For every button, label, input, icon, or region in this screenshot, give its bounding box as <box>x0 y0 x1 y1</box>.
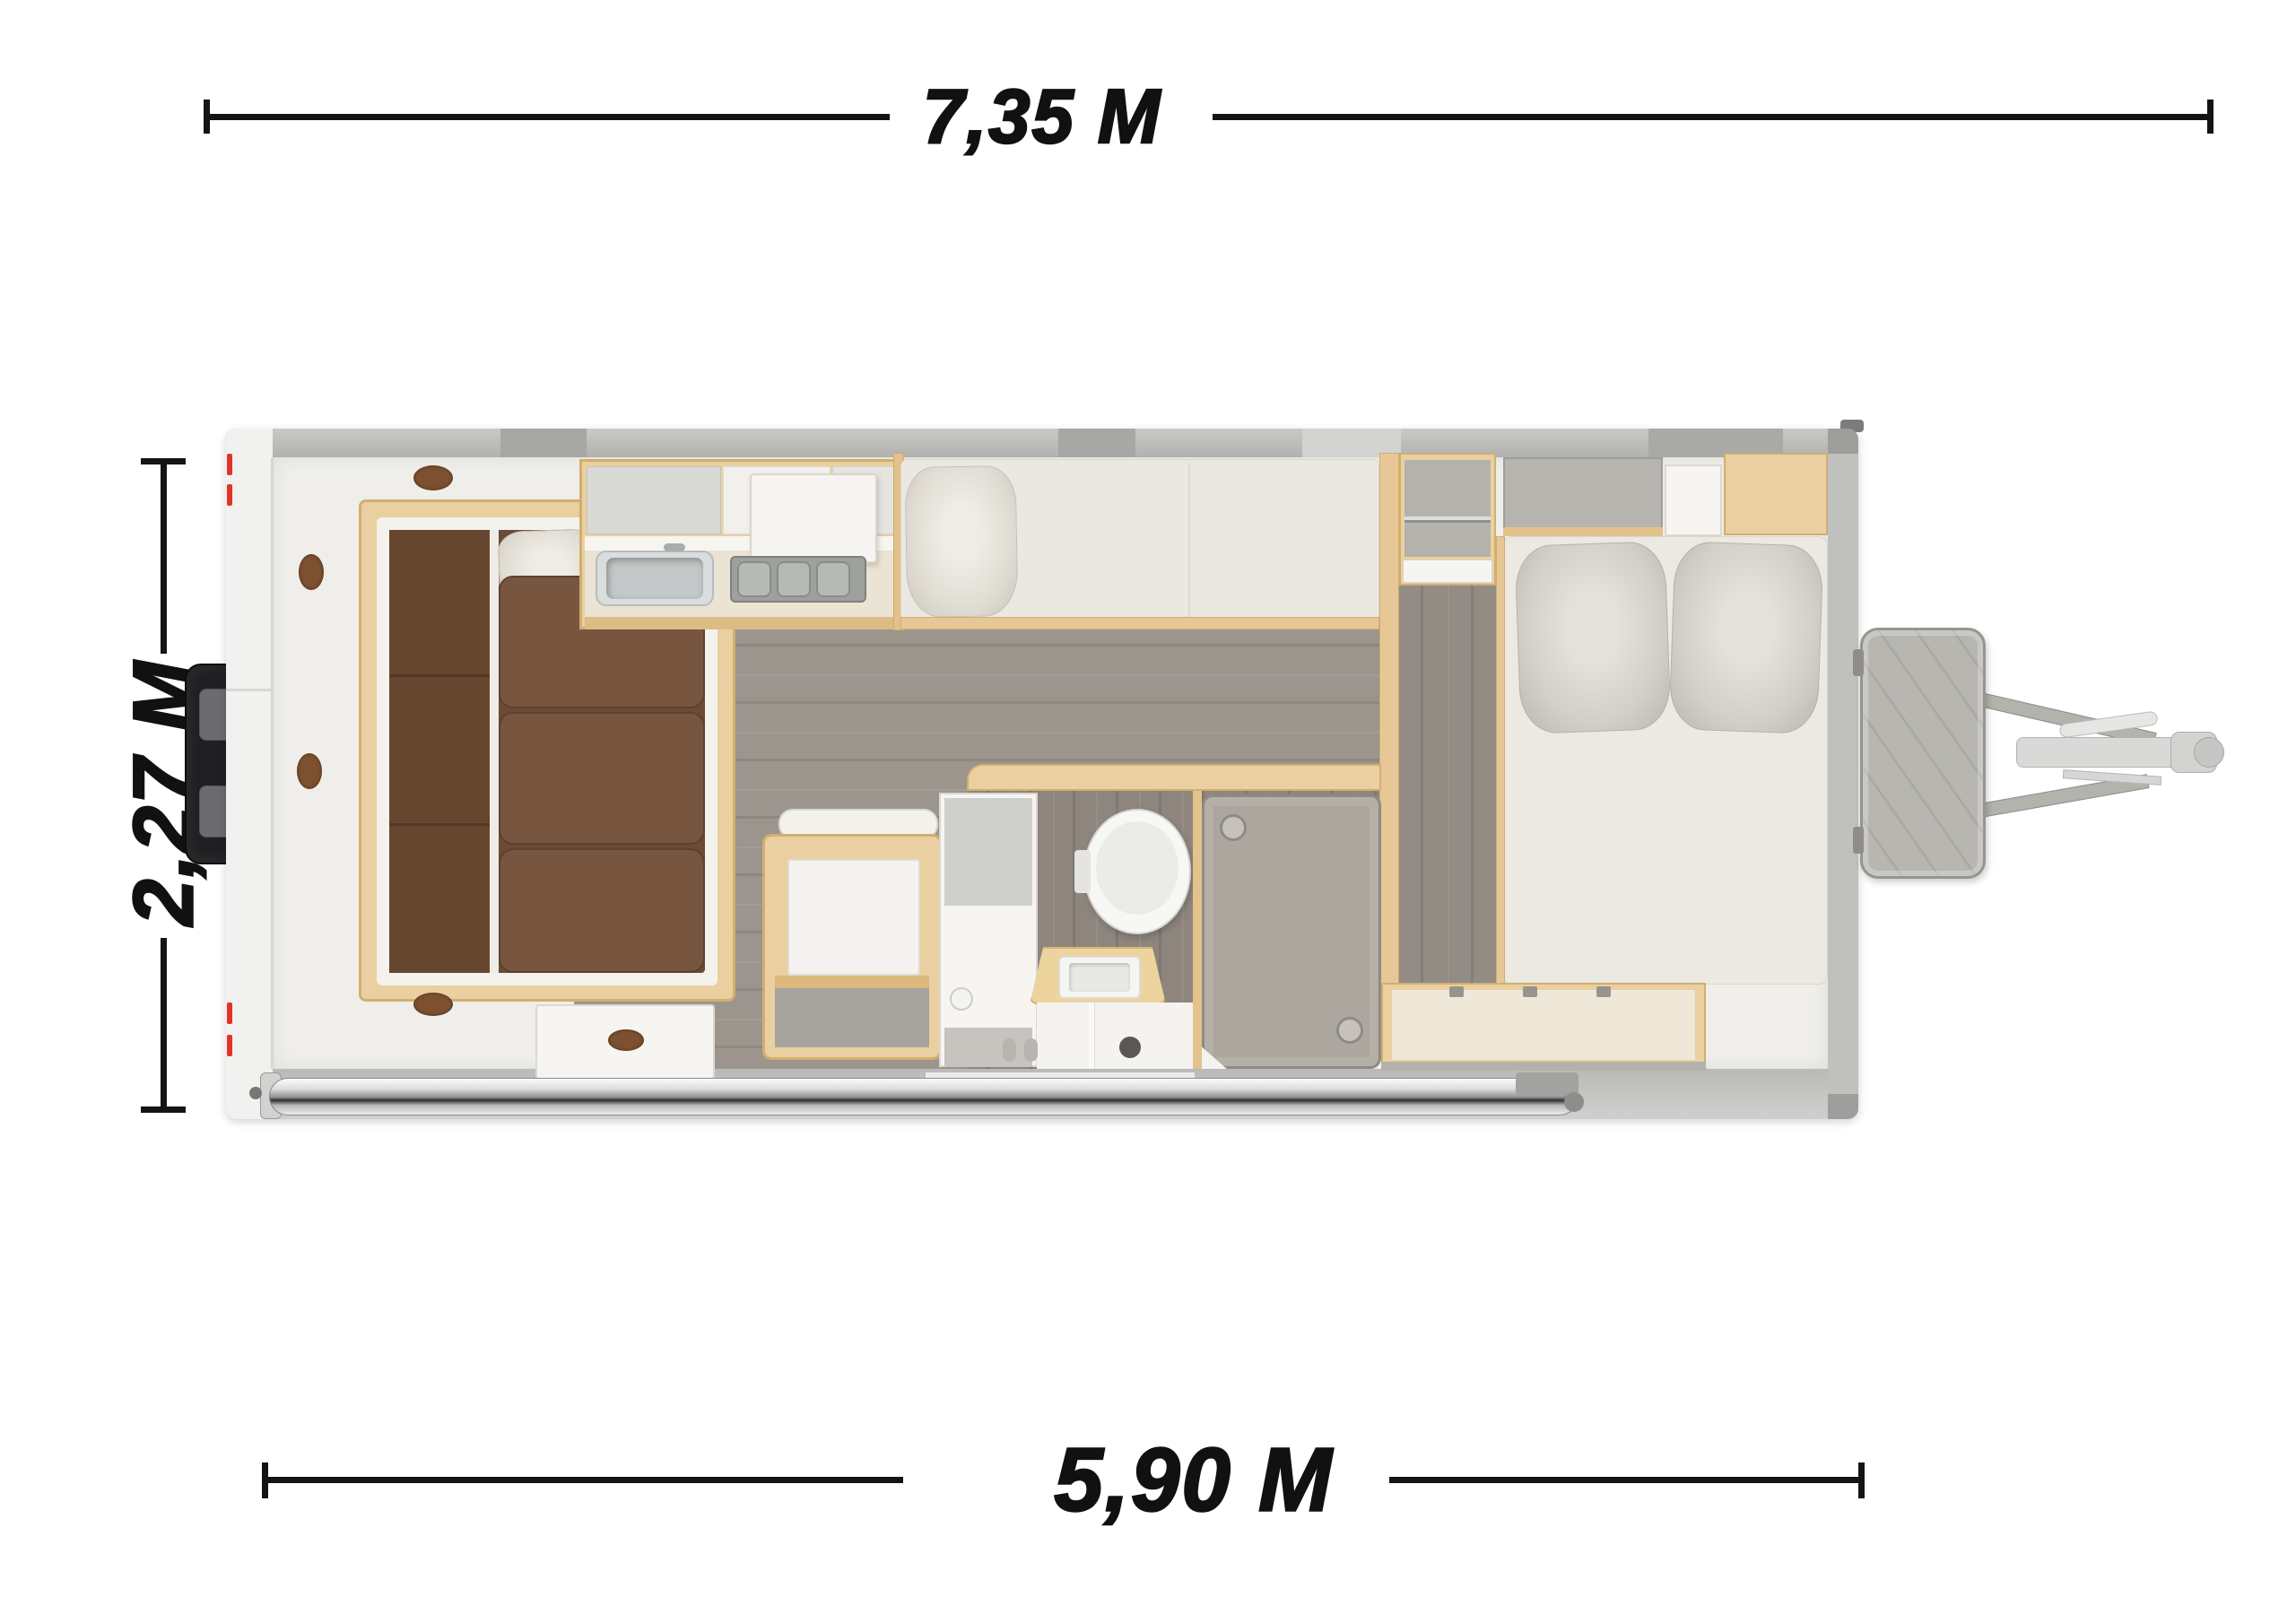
lounge-back-seam-2 <box>389 823 490 826</box>
bed-head-cabinet-wood <box>1724 453 1828 535</box>
caravan-floorplan-canvas: 7,35 M 2,27 M 5,90 M <box>0 0 2296 1623</box>
single-bed-pillow <box>905 465 1019 618</box>
single-bed-seam <box>1188 463 1190 617</box>
roof-hatch-1 <box>500 429 587 457</box>
bathroom-cabinet-base <box>944 1028 1032 1067</box>
clearance-light-2 <box>227 484 232 506</box>
under-bed-storage-interior <box>1392 990 1695 1060</box>
storage-hinge-3 <box>1596 986 1611 997</box>
bed-head-shelf-edge <box>1503 527 1663 536</box>
cooker-lid-box <box>750 473 877 563</box>
dim-bottom-label: 5,90 M <box>1054 1429 1333 1532</box>
cooktop-burner-3 <box>816 561 850 597</box>
dinette-lower-shadow <box>775 988 929 1047</box>
bathroom-top-wall <box>967 764 1381 791</box>
bathroom-drain-dot <box>1119 1037 1141 1058</box>
vent-oval-3 <box>297 753 322 789</box>
kitchen-locker-left <box>587 466 721 534</box>
bathroom-pill-2 <box>1024 1038 1038 1062</box>
storage-hinge-1 <box>1449 986 1464 997</box>
single-bed-front-rail <box>900 617 1379 629</box>
dim-top-label: 7,35 M <box>923 74 1161 161</box>
main-bed-pillow-left <box>1514 541 1671 734</box>
storage-front-lip <box>1381 1062 1706 1071</box>
cooktop-burner-1 <box>737 561 771 597</box>
dim-top-tick-right <box>2207 100 2213 134</box>
bed-head-shelf-gray <box>1503 457 1663 533</box>
lounge-seat-cushion-2 <box>499 712 705 845</box>
toilet-hinge <box>1074 850 1091 893</box>
kitchen-faucet <box>664 543 685 551</box>
coupler-rail <box>2016 737 2187 768</box>
awning-bolt-left <box>249 1087 262 1099</box>
vent-oval-2 <box>299 554 324 590</box>
roof-edge-top <box>226 429 1858 457</box>
dim-bottom-line-left <box>262 1477 903 1483</box>
mid-shelf-drawer <box>1403 560 1492 583</box>
bathroom-pill-1 <box>1003 1038 1016 1062</box>
dinette-tabletop <box>787 859 920 976</box>
awning-knob-right <box>1564 1092 1584 1112</box>
cooktop-burner-2 <box>777 561 811 597</box>
shower-drain-bottom <box>1336 1017 1363 1044</box>
main-bed-pillow-right <box>1668 541 1823 734</box>
rear-wall-band <box>226 429 273 1119</box>
dim-left-line-bottom <box>161 938 167 1110</box>
bathroom-cabinet-inset <box>944 798 1032 906</box>
clearance-light-4 <box>227 1035 232 1056</box>
front-wall-band <box>1828 429 1858 1119</box>
hitch-ball-cap <box>2194 737 2224 768</box>
dim-left-tick-bottom <box>141 1107 186 1113</box>
lounge-seat-cushion-3 <box>499 848 705 973</box>
rear-wall-seam <box>226 689 273 691</box>
bathroom-cabinet-knob <box>950 987 973 1011</box>
kitchen-front-edge <box>585 617 900 629</box>
front-corner-post-top <box>1828 429 1858 454</box>
shower-wall-divider <box>1193 791 1202 1069</box>
gas-box-hinge-top <box>1853 649 1864 676</box>
lounge-back-cushion <box>389 530 490 973</box>
vent-oval-5 <box>608 1029 644 1051</box>
dim-bottom-tick-right <box>1858 1462 1865 1498</box>
vent-oval-4 <box>413 993 453 1016</box>
gas-bottle-box <box>1860 628 1986 879</box>
single-bed-foot-rail <box>1379 453 1399 988</box>
vanity-basin-bowl <box>1069 963 1130 992</box>
lounge-divider <box>490 530 499 973</box>
clearance-light-1 <box>227 454 232 475</box>
dim-top-line-right <box>1213 114 2211 120</box>
kitchen-sink-basin <box>606 558 703 599</box>
front-corner-post-bottom <box>1828 1094 1858 1119</box>
floor-corridor <box>1397 581 1496 985</box>
bed-head-cabinet-white <box>1665 464 1722 536</box>
dim-left-line-top <box>161 458 167 654</box>
vent-oval-1 <box>413 465 453 490</box>
clearance-light-3 <box>227 1002 232 1024</box>
main-bed-side-rail <box>1496 536 1505 985</box>
toilet-lid <box>1096 821 1178 915</box>
gas-box-hinge-bottom <box>1853 827 1864 854</box>
roof-hatch-2 <box>1058 429 1135 457</box>
dim-bottom-line-right <box>1389 1477 1865 1483</box>
storage-hinge-2 <box>1523 986 1537 997</box>
mid-shelf-chrome-rail <box>1405 516 1491 520</box>
mid-shelf-interior <box>1405 460 1491 557</box>
interior-wall-line <box>271 457 274 1069</box>
dinette-lower-strip <box>775 976 929 988</box>
shower-drain-top <box>1220 814 1247 841</box>
dim-top-line-left <box>204 114 890 120</box>
bathroom-counter-seam <box>1089 1002 1094 1069</box>
lounge-back-seam-1 <box>389 674 490 677</box>
awning-roller <box>269 1078 1578 1115</box>
